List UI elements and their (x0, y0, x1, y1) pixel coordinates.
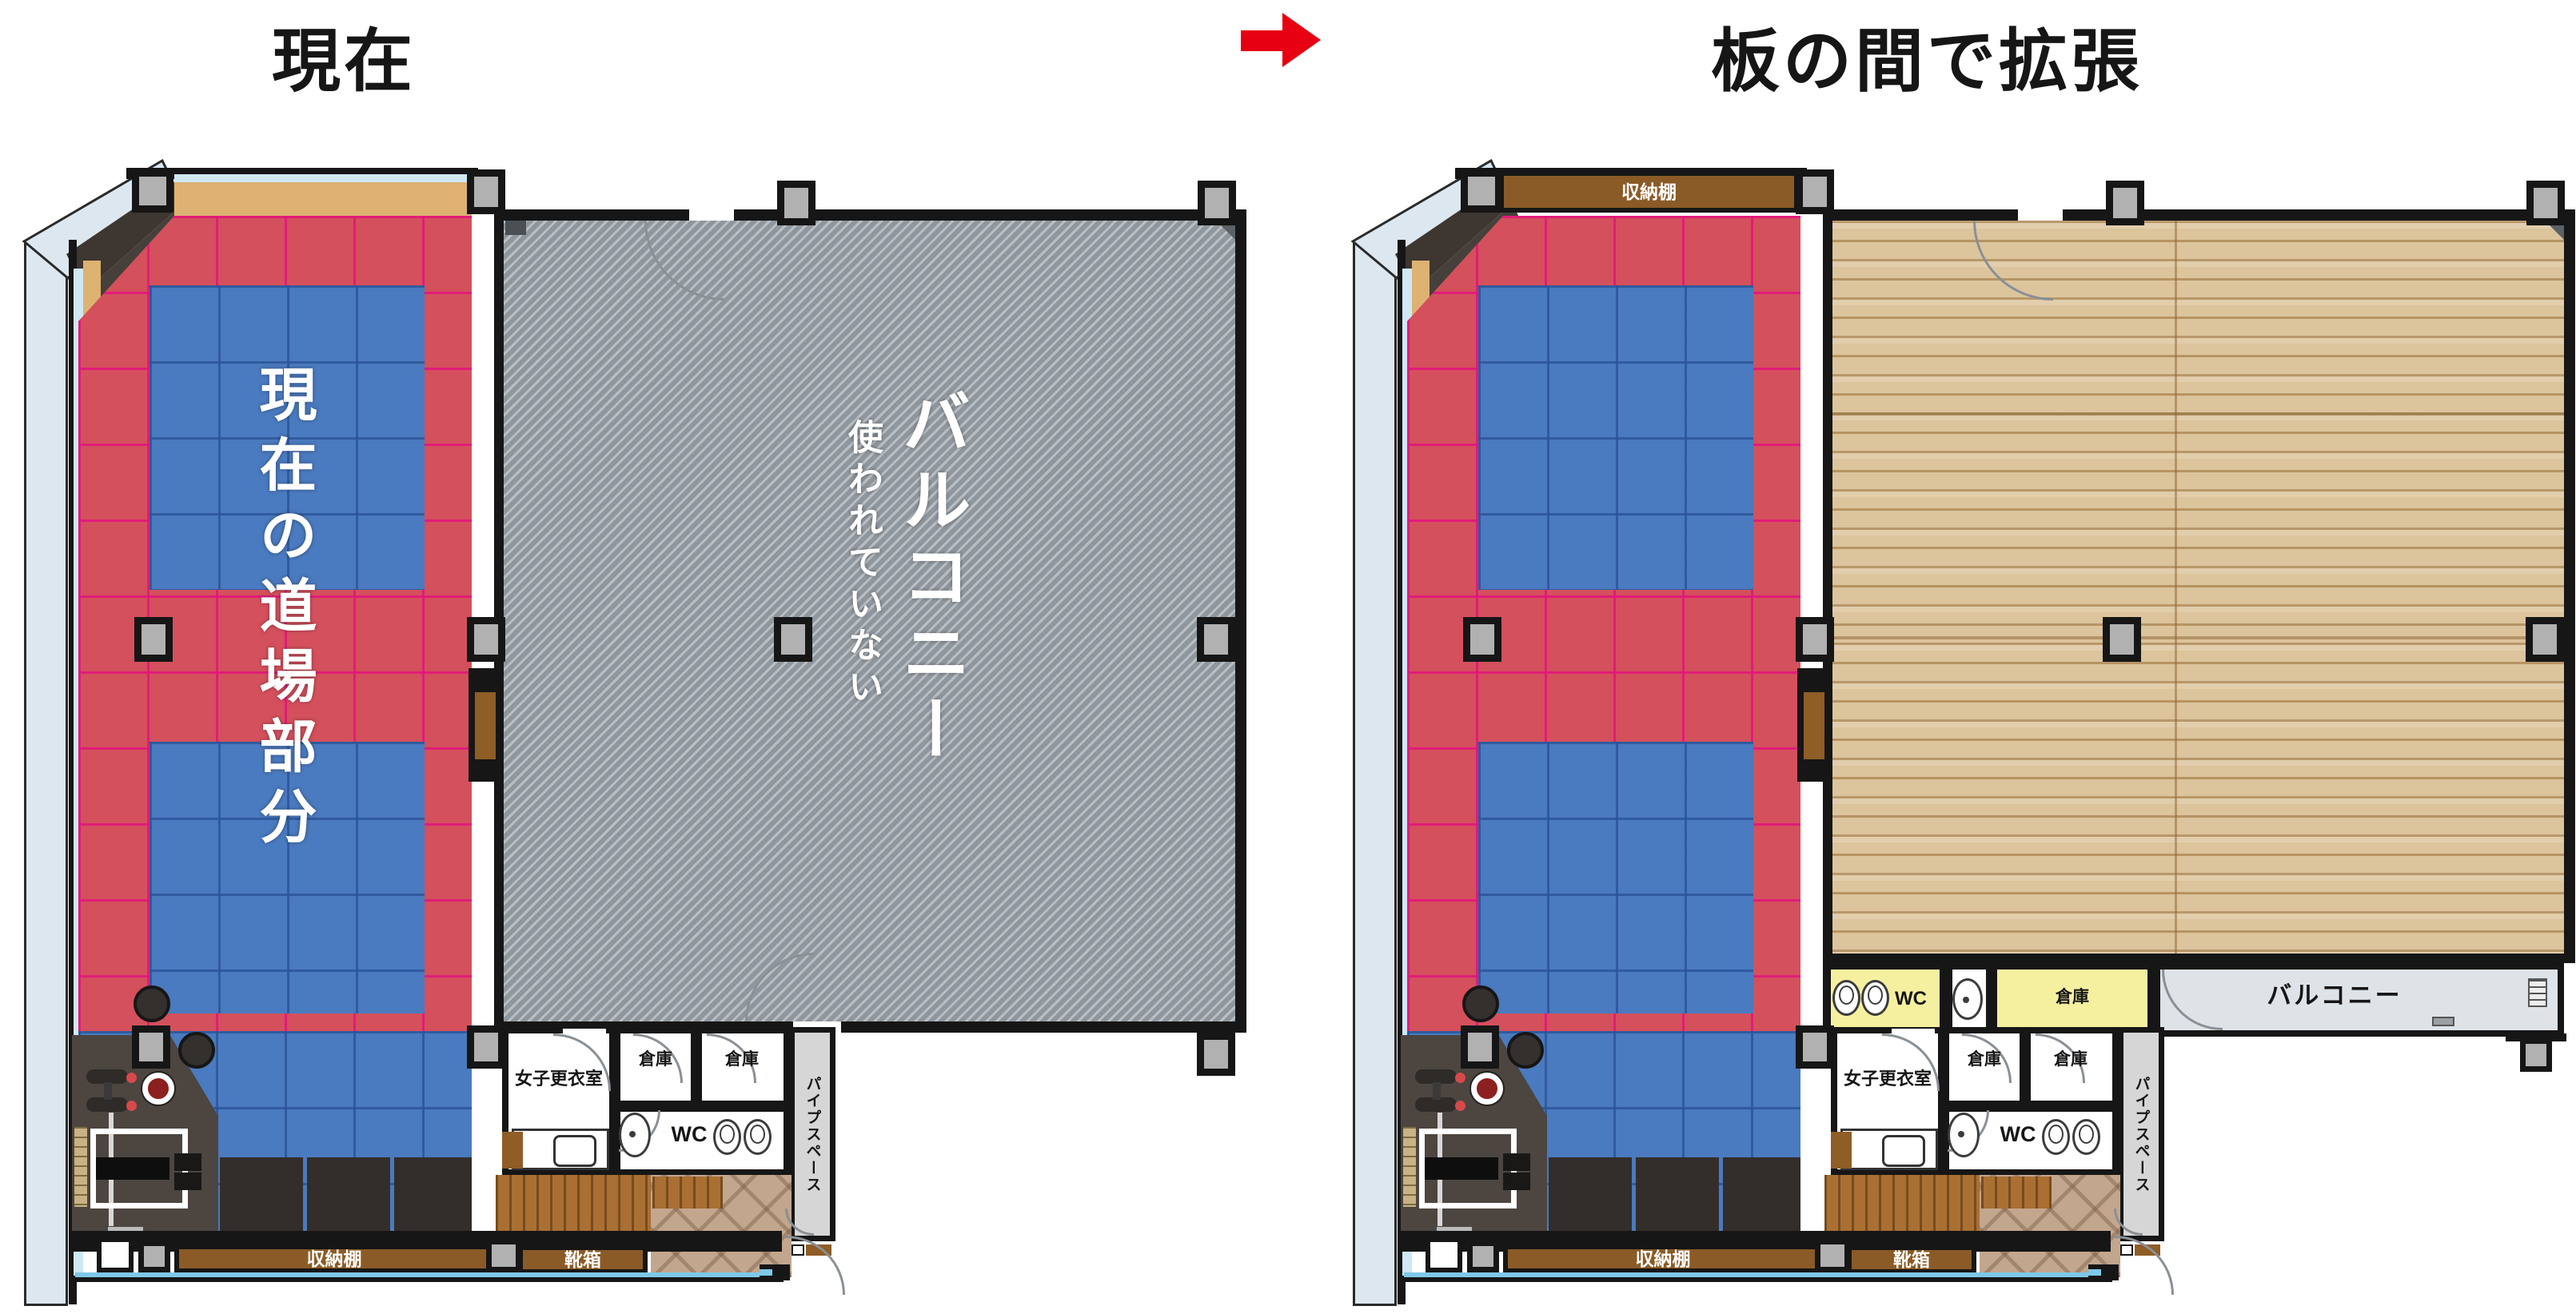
wall (1823, 954, 2575, 963)
wall (494, 209, 1246, 221)
bench-pad (96, 1157, 169, 1180)
plank-joint-line (2175, 221, 2177, 954)
weight-plate-icon (174, 1173, 201, 1190)
door-opening (689, 209, 734, 221)
wood-deck (1824, 1175, 1981, 1236)
pillar (1461, 1025, 1499, 1069)
toilet-icon (2042, 1119, 2070, 1155)
exterior-wall-band (1353, 241, 1397, 1306)
glass-line (2088, 1269, 2101, 1276)
pillar (467, 169, 505, 214)
pillar (1796, 1025, 1834, 1069)
weight-plate-icon (1503, 1153, 1530, 1171)
pillar (2526, 181, 2565, 225)
pillar (777, 181, 815, 225)
balcony-corner-notch (505, 221, 526, 235)
arrow-head (1282, 13, 1321, 67)
wall (69, 1277, 784, 1282)
pillar (132, 169, 173, 213)
door-opening (2018, 209, 2063, 221)
shoe-box-label: 靴箱 (1893, 1251, 1930, 1269)
bench-pad (1425, 1157, 1498, 1180)
gym-knob (1455, 1073, 1465, 1083)
wc-label: WC (667, 1122, 712, 1146)
shoe-box-label: 靴箱 (564, 1251, 601, 1269)
dark-floor-tile (220, 1157, 303, 1235)
punching-bag-dot (1507, 1032, 1544, 1069)
dark-floor-tile (394, 1157, 472, 1235)
wood-floor-area (1832, 221, 2564, 954)
wc-label: WC (1996, 1122, 2040, 1146)
pillar (2106, 181, 2144, 225)
weight-plate-icon (174, 1153, 201, 1171)
blue-mat-block-upper (1478, 285, 1753, 590)
wood-deck-step (1981, 1177, 2052, 1208)
pillar (486, 1239, 521, 1272)
balcony-label: バルコニー (900, 387, 980, 834)
pillar (1461, 169, 1502, 213)
gym-knob (126, 1101, 137, 1111)
bench-item (2432, 1017, 2454, 1026)
womens-locker-label: 女子更衣室 (1834, 1068, 1941, 1090)
storage-b-label: 倉庫 (2039, 1049, 2103, 1069)
shoe-box-strip: 靴箱 (1847, 1245, 1976, 1274)
storage-a-label: 倉庫 (1952, 1049, 2016, 1069)
shoe-box-strip: 靴箱 (518, 1245, 648, 1274)
wood-stub (475, 692, 496, 759)
pillar (1197, 1033, 1235, 1076)
dojo-label: 現在の道場部分 (251, 364, 325, 1004)
gym-knob (1455, 1101, 1465, 1111)
pillar (1467, 1240, 1499, 1272)
pillar (2520, 1038, 2552, 1072)
wood-deck (496, 1175, 652, 1236)
punching-bag-dot (178, 1032, 215, 1069)
punching-bag-dot (134, 985, 170, 1022)
storage-b-label: 倉庫 (710, 1049, 774, 1069)
ladder-icon (2528, 978, 2547, 1007)
pillar (467, 1025, 505, 1069)
wall (1398, 1277, 2112, 1282)
wall (1823, 209, 2575, 221)
weight-plate-icon (1503, 1173, 1530, 1190)
storage-shelf-label: 収納棚 (307, 1250, 362, 1268)
pipe-space-label: パイプスペース (2134, 1076, 2149, 1193)
stool-icon (142, 1073, 174, 1105)
storage-shelf-top-strip: 収納棚 (1499, 171, 1799, 213)
counter-sink (553, 1135, 596, 1167)
wall (2564, 209, 2575, 963)
sink-icon (1948, 1113, 1980, 1157)
glass-line (760, 1269, 772, 1276)
entry-door-arc (2115, 1236, 2174, 1295)
corner-box (1426, 1237, 1462, 1272)
sink-icon (1952, 978, 1983, 1020)
toilet-icon (1832, 980, 1860, 1016)
storage-shelf-strip: 収納棚 (174, 1244, 494, 1273)
pillar (467, 617, 505, 662)
transition-arrow-icon (1241, 11, 1329, 69)
left-floor-plan: 現在の道場部分 バルコニー 使われていない (22, 77, 1250, 1314)
pillar (134, 617, 173, 662)
bench-slats (1403, 1127, 1416, 1207)
toilet-icon (1861, 980, 1889, 1016)
pillar (774, 617, 812, 662)
dark-floor-tile (307, 1157, 390, 1235)
dumbbell-rack-bar (104, 1082, 112, 1100)
exterior-wall-band (24, 241, 68, 1306)
mid-storage-label: 倉庫 (2039, 986, 2106, 1007)
pillar (132, 1025, 170, 1069)
entry-door-arc (786, 1236, 845, 1295)
balcony-strip-label: バルコニー (2223, 982, 2446, 1009)
pillar (1198, 181, 1236, 225)
stool-icon (1471, 1073, 1503, 1105)
pillar (1463, 617, 1501, 662)
storage-a-label: 倉庫 (624, 1049, 688, 1069)
mid-wc-label: WC (1892, 988, 1930, 1010)
toilet-icon (744, 1119, 772, 1155)
locker-bench (1831, 1132, 1852, 1169)
womens-locker-label: 女子更衣室 (505, 1068, 612, 1090)
corner-box (97, 1237, 134, 1272)
dark-floor-tile (1636, 1157, 1719, 1235)
pipe-space-label: パイプスペース (805, 1076, 820, 1193)
toilet-icon (713, 1119, 741, 1155)
gym-knob (126, 1073, 137, 1083)
wood-stub (1804, 692, 1824, 759)
plank-joint-line (1832, 412, 2564, 416)
pillar (1197, 617, 1235, 662)
storage-shelf-top-label: 収納棚 (1621, 183, 1677, 201)
counter-sink (1882, 1135, 1925, 1167)
toilet-icon (2072, 1119, 2100, 1155)
balcony-note-label: 使われていない (843, 419, 887, 802)
sink-icon (619, 1113, 651, 1157)
locker-bench (502, 1132, 523, 1169)
right-floor-plan: 収納棚 WC 倉庫 バルコニー (1351, 77, 2576, 1314)
dark-floor-tile (1723, 1157, 1800, 1235)
punching-bag-dot (1462, 985, 1499, 1022)
dumbbell-rack-bar (1433, 1082, 1441, 1100)
pillar (1815, 1239, 1850, 1272)
wall (1235, 209, 1246, 1033)
dark-floor-tile (1549, 1157, 1632, 1235)
storage-shelf-strip: 収納棚 (1503, 1244, 1823, 1273)
arrow-bar (1241, 30, 1284, 51)
wood-deck-step (652, 1177, 723, 1208)
bench-slats (74, 1127, 87, 1207)
blue-mat-block-lower (1478, 742, 1753, 1013)
plank-joint-line (1832, 636, 2564, 639)
pillar (2103, 617, 2141, 662)
pillar (1796, 169, 1834, 214)
pillar (138, 1240, 170, 1272)
wood-sill-strip (174, 182, 472, 216)
pillar (1796, 617, 1834, 662)
storage-shelf-label: 収納棚 (1636, 1250, 1691, 1268)
pillar (2526, 617, 2564, 662)
